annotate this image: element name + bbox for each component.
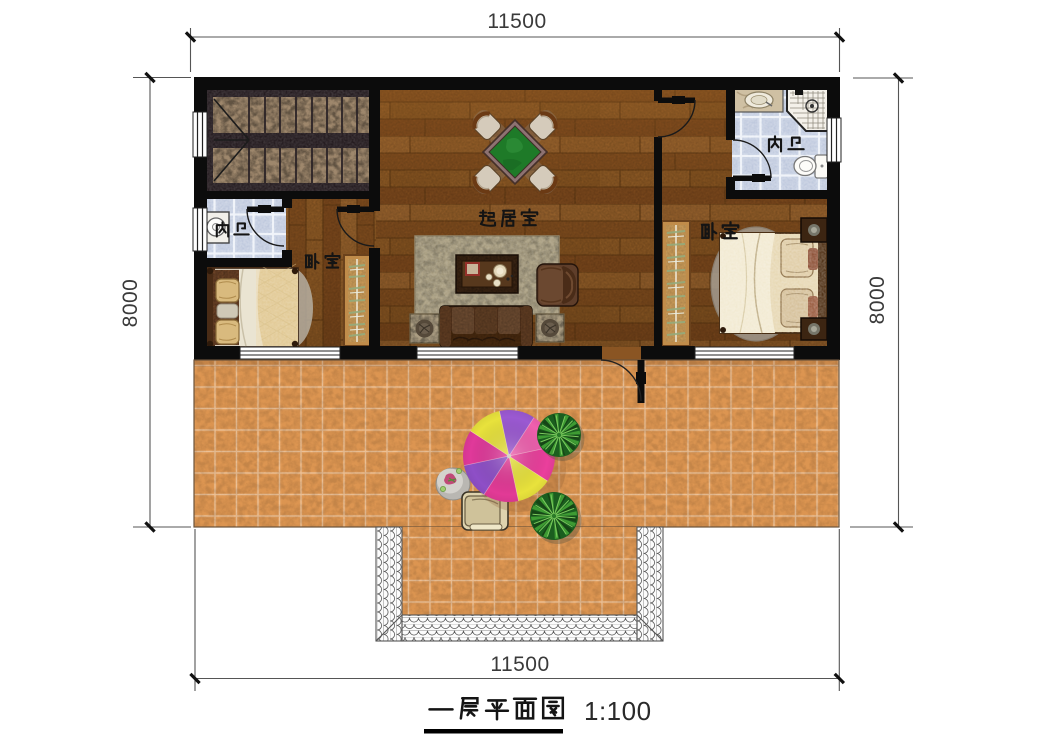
svg-text:1:100: 1:100	[584, 696, 652, 726]
svg-text:8000: 8000	[866, 276, 889, 325]
svg-text:11500: 11500	[487, 10, 546, 33]
svg-text:11500: 11500	[490, 653, 549, 676]
svg-text:8000: 8000	[119, 279, 142, 328]
